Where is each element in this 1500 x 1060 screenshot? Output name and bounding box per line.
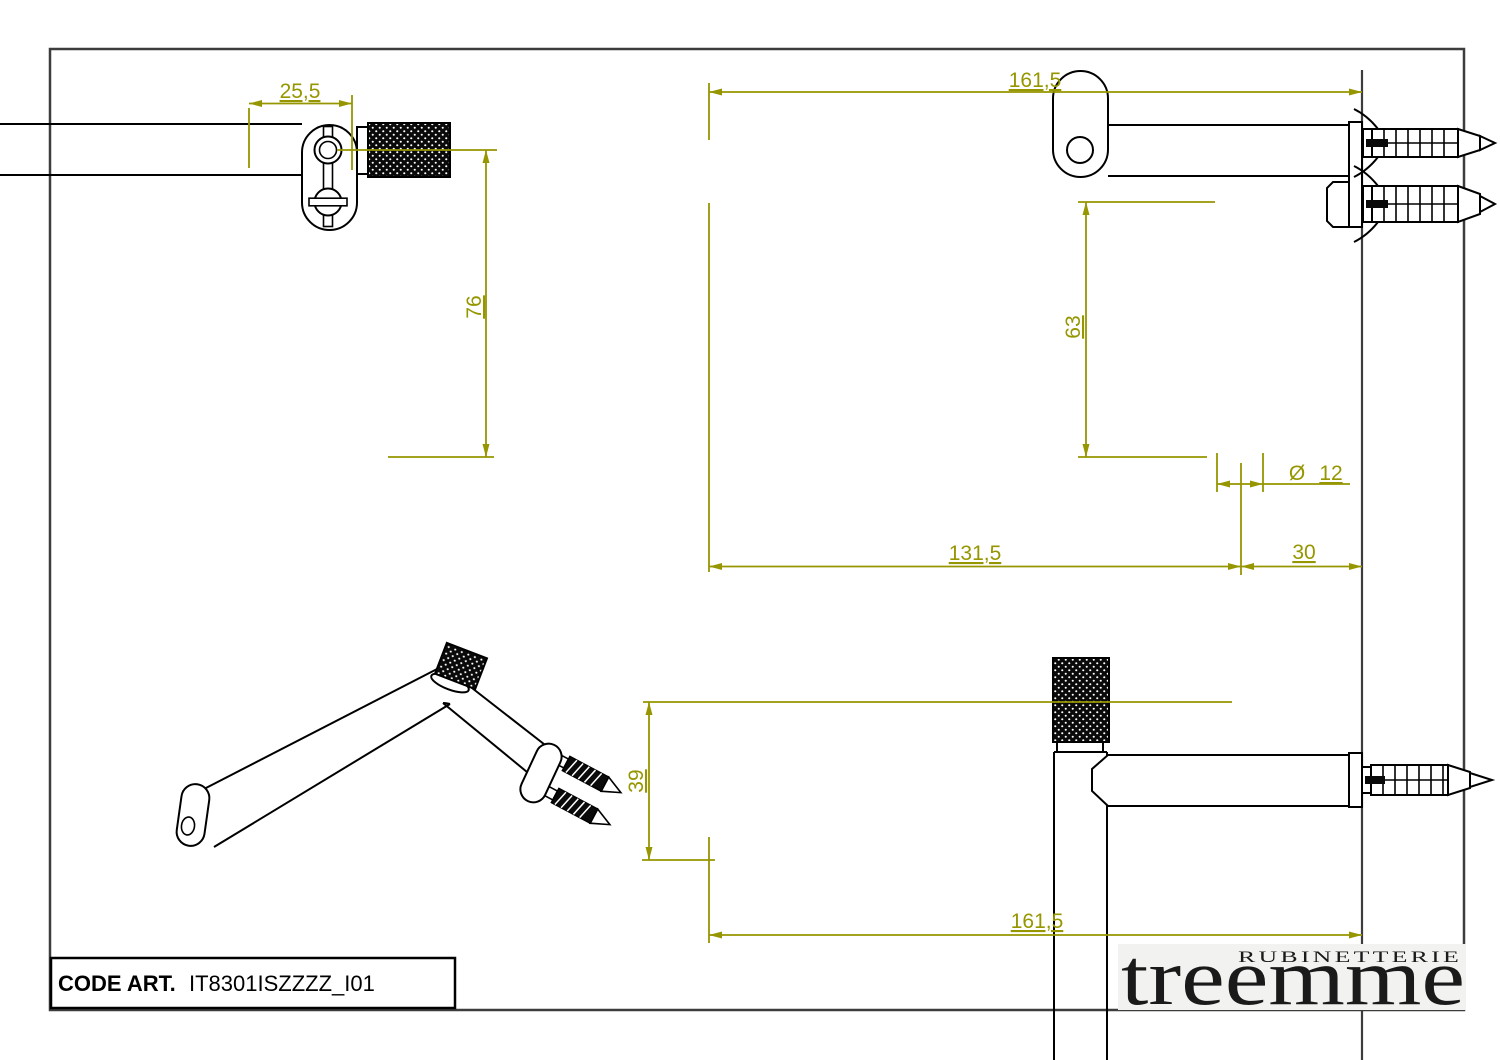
dim-side-inner: 131,5 [709, 542, 1241, 570]
top-screw-inner [320, 142, 337, 159]
dim-front-drop: 76 [337, 150, 497, 457]
code-art-value: IT8301ISZZZZ_I01 [189, 971, 375, 996]
knob-neck [1057, 742, 1103, 752]
anchor-cone [1458, 186, 1480, 222]
iso-bar2-top [463, 681, 549, 748]
dim-side-total: 161,5 [709, 69, 1362, 572]
anchor-tip [1480, 136, 1495, 150]
wall-arm [1092, 755, 1349, 806]
dim-front-width-text: 25,5 [280, 80, 321, 103]
dim-side-height-text: 63 [1062, 315, 1085, 338]
plate-hole [1067, 137, 1093, 163]
dim-bar-diameter: Ø 12 [1217, 453, 1350, 575]
dim-plan-total: 161,5 [709, 837, 1362, 943]
wall-flange [1349, 753, 1362, 807]
frame-border [50, 49, 1464, 1010]
technical-drawing-page: CODE ART. IT8301ISZZZZ_I01 RUBINETTERIE … [0, 0, 1500, 1060]
mount-screw-head [1327, 182, 1350, 227]
title-block: CODE ART. IT8301ISZZZZ_I01 [51, 958, 455, 1008]
dim-side-inner-text: 131,5 [949, 542, 1002, 565]
drawing-frame [50, 49, 1464, 1060]
dim-diameter-symbol: Ø [1289, 462, 1305, 485]
logo: RUBINETTERIE treemme [1118, 934, 1466, 1022]
anchor-cone [1458, 129, 1480, 157]
bottom-screw-slot [309, 198, 347, 206]
side-view [1053, 71, 1495, 242]
anchor-cone [1448, 765, 1470, 795]
dim-side-total-text: 161,5 [1009, 69, 1062, 92]
isometric-view [175, 643, 625, 848]
iso-end-cap [175, 782, 211, 847]
dimensions-layer: 25,5 76 161,5 63 [249, 69, 1362, 943]
dim-side-height: 63 [1062, 202, 1215, 457]
dim-plan-offset-text: 39 [625, 769, 648, 792]
knurled-knob [1053, 658, 1109, 742]
code-art-label: CODE ART. [58, 971, 176, 996]
wall-anchor-upper [1354, 109, 1495, 177]
wall-anchor-plan [1362, 765, 1492, 795]
drawing-canvas: CODE ART. IT8301ISZZZZ_I01 RUBINETTERIE … [0, 0, 1500, 1060]
iso-bar2-bottom [443, 703, 527, 772]
iso-bar1-top [204, 668, 439, 789]
dim-front-drop-text: 76 [463, 295, 486, 318]
screw-slot-mark [1366, 139, 1388, 147]
dim-plan-total-text: 161,5 [1011, 910, 1064, 933]
iso-bar1-bottom [214, 704, 450, 847]
screw-slot-mark [1366, 200, 1388, 208]
screw-slot-mark [1365, 776, 1385, 784]
wall-anchor-lower [1354, 166, 1495, 242]
anchor-tip [1470, 773, 1492, 787]
logo-brand: treemme [1121, 934, 1465, 1022]
dim-diameter-value: 12 [1319, 462, 1342, 485]
front-view [0, 123, 450, 230]
anchor-tip [1480, 196, 1495, 212]
dim-wall-depth: 30 [1241, 541, 1362, 570]
dim-wall-depth-text: 30 [1292, 541, 1315, 564]
